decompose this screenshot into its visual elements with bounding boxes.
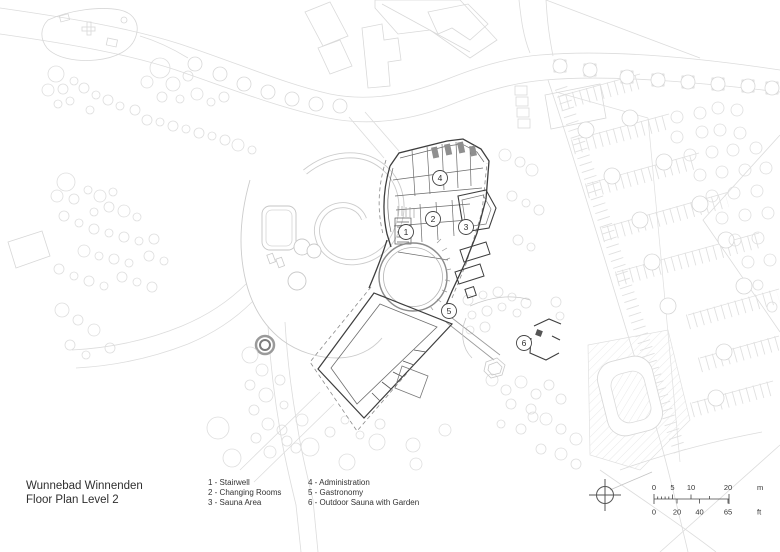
scale-bar-m-labels: 0 5 10 20 m [652, 483, 763, 492]
site-plan-sheet: 1 2 3 4 5 6 [0, 0, 780, 552]
svg-text:6: 6 [522, 338, 527, 348]
marker-2: 2 [426, 212, 441, 227]
marker-1: 1 [399, 225, 414, 240]
project-title: Wunnebad Winnenden [26, 480, 143, 494]
svg-text:10: 10 [687, 483, 695, 492]
legend-item-6: 6 - Outdoor Sauna with Garden [308, 498, 419, 508]
scale-bar: 0 5 10 20 m 0 20 40 65 ft [652, 483, 763, 517]
context-parking [556, 74, 779, 470]
title-block: Wunnebad Winnenden Floor Plan Level 2 [26, 480, 143, 507]
legend-column-2: 4 - Administration 5 - Gastronomy 6 - Ou… [308, 478, 419, 507]
legend-item-2: 2 - Changing Rooms [208, 488, 281, 498]
context-pools [241, 155, 401, 358]
legend-item-4: 4 - Administration [308, 478, 419, 488]
svg-text:0: 0 [652, 508, 656, 517]
svg-text:m: m [757, 483, 763, 492]
svg-text:3: 3 [464, 222, 469, 232]
legend-item-3: 3 - Sauna Area [208, 498, 281, 508]
svg-text:4: 4 [438, 173, 443, 183]
svg-text:20: 20 [724, 483, 732, 492]
svg-text:ft: ft [757, 508, 762, 517]
north-arrow-icon [589, 472, 652, 511]
marker-4: 4 [433, 171, 448, 186]
marker-6: 6 [517, 336, 532, 351]
svg-text:5: 5 [447, 306, 452, 316]
scale-bar-ft-labels: 0 20 40 65 ft [652, 508, 762, 517]
site-plan-drawing: 1 2 3 4 5 6 [0, 0, 780, 552]
context-playground [8, 8, 137, 268]
marker-3: 3 [459, 220, 474, 235]
plan-markers: 1 2 3 4 5 6 [399, 171, 532, 351]
svg-text:65: 65 [724, 508, 732, 517]
svg-text:0: 0 [652, 483, 656, 492]
svg-text:40: 40 [695, 508, 703, 517]
svg-text:5: 5 [670, 483, 674, 492]
legend-column-1: 1 - Stairwell 2 - Changing Rooms 3 - Sau… [208, 478, 281, 507]
svg-text:1: 1 [404, 227, 409, 237]
marker-5: 5 [442, 304, 457, 319]
drawing-title: Floor Plan Level 2 [26, 494, 143, 508]
legend-item-1: 1 - Stairwell [208, 478, 281, 488]
svg-text:2: 2 [431, 214, 436, 224]
svg-text:20: 20 [673, 508, 681, 517]
legend-item-5: 5 - Gastronomy [308, 488, 419, 498]
